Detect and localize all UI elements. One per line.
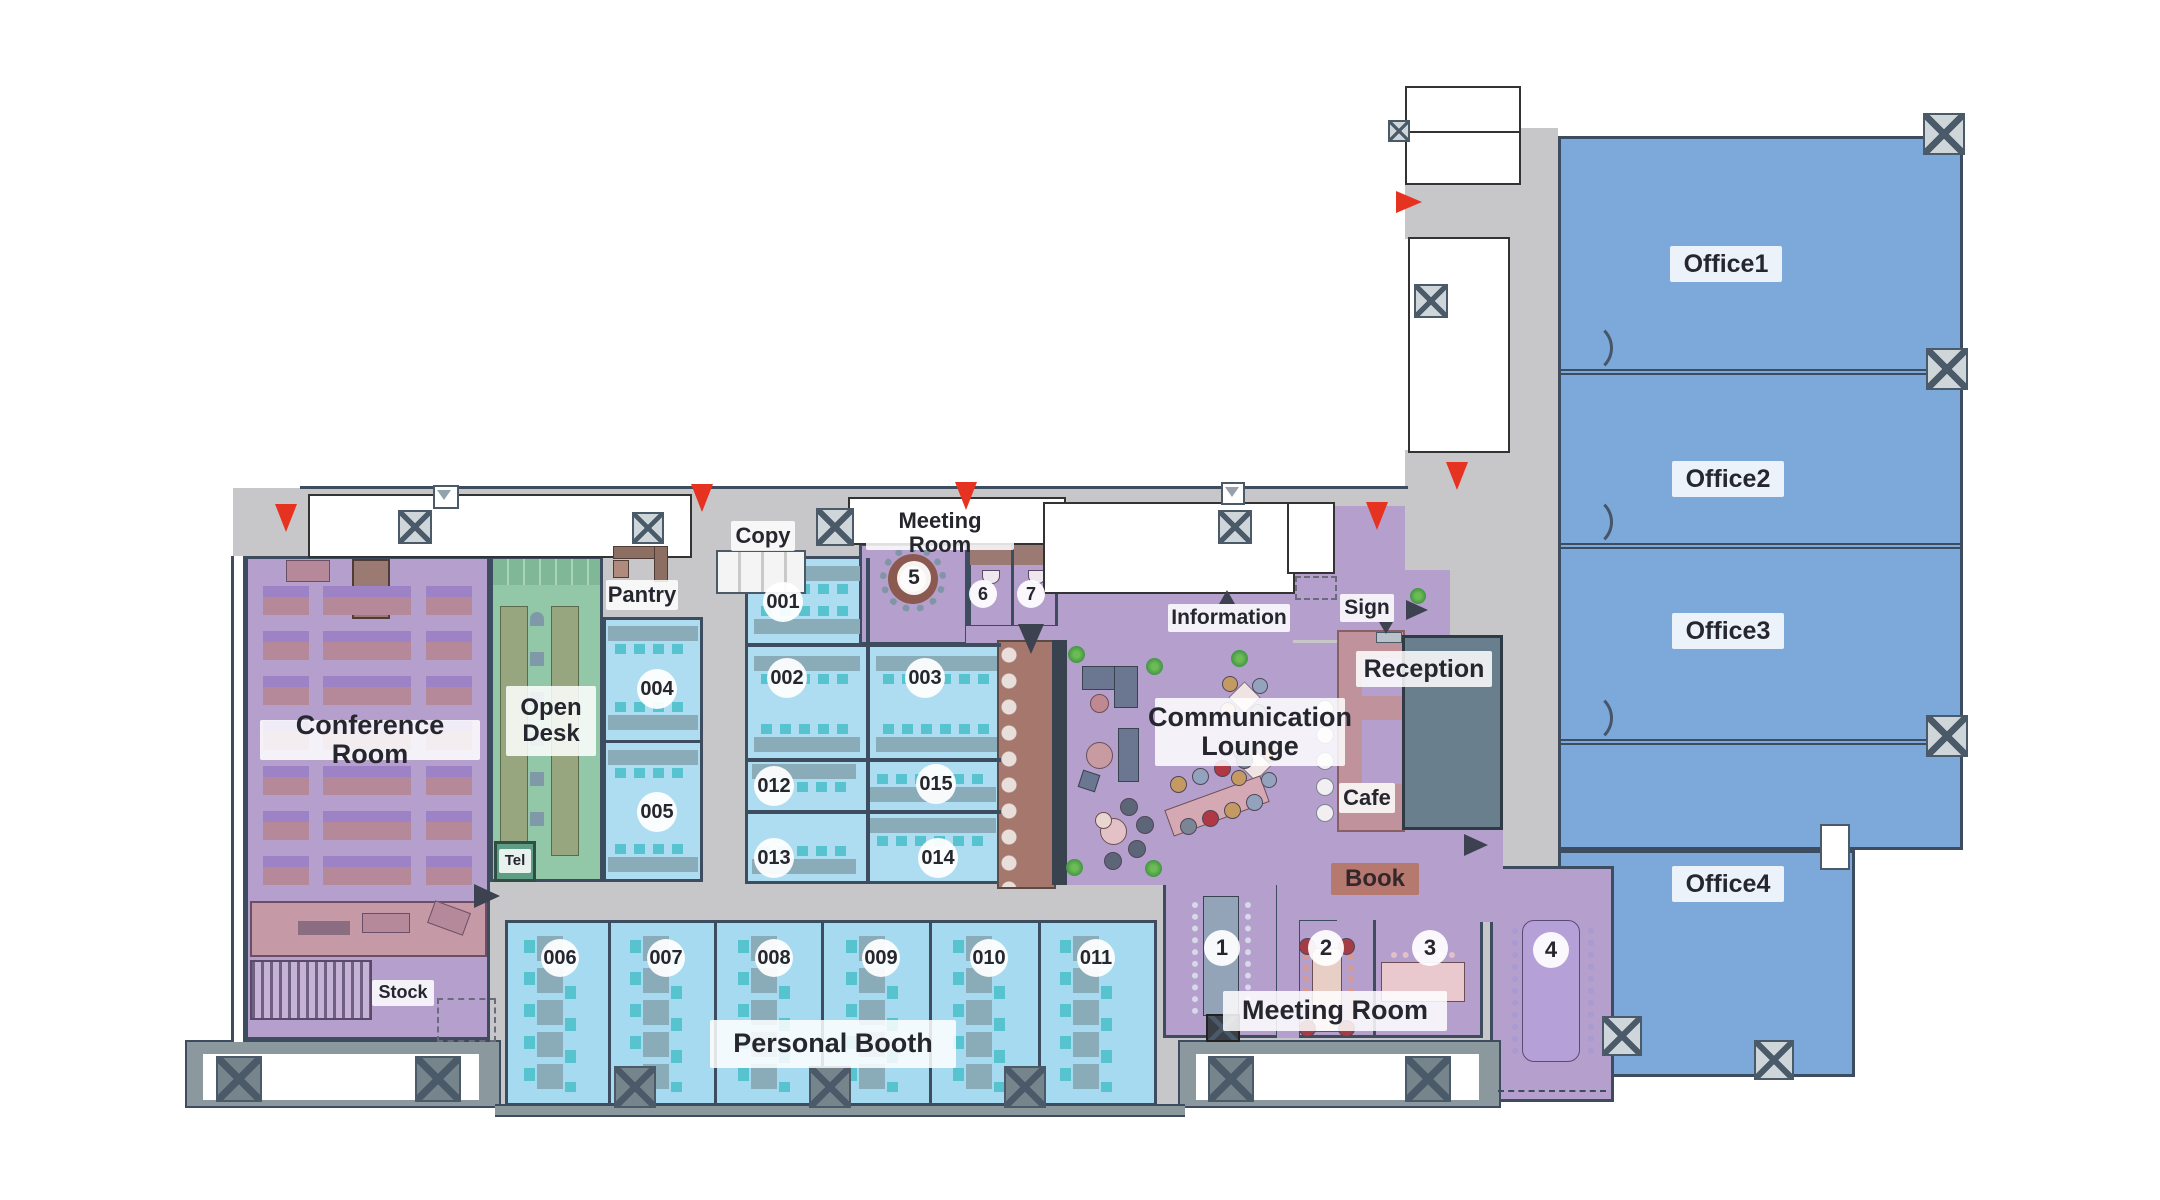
locker-icon bbox=[614, 1066, 656, 1108]
route-arrow-icon bbox=[1406, 600, 1428, 620]
lounge-chair bbox=[1261, 772, 1277, 788]
lounge-chair bbox=[1104, 852, 1122, 870]
cafe-seat bbox=[1316, 778, 1334, 796]
reception-label: Reception bbox=[1356, 651, 1492, 687]
room-number: 004 bbox=[637, 669, 677, 709]
route-arrow-icon bbox=[1379, 622, 1393, 634]
entrance-arrow-icon bbox=[955, 482, 977, 510]
room-number: 2 bbox=[1308, 930, 1344, 966]
lounge-chair bbox=[1246, 794, 1263, 811]
office1-label: Office1 bbox=[1670, 246, 1782, 282]
plant-icon bbox=[1066, 859, 1083, 876]
lounge-chair bbox=[1120, 798, 1138, 816]
lounge-chair bbox=[1252, 678, 1268, 694]
entrance-arrow-icon bbox=[691, 484, 713, 512]
lounge-chair bbox=[1202, 810, 1219, 827]
office1-office2-wall bbox=[1561, 369, 1960, 375]
office1-door-arc bbox=[1561, 322, 1613, 374]
entrance-arrow-icon bbox=[1446, 462, 1468, 490]
cafe-seat bbox=[1316, 804, 1334, 822]
room-number: 002 bbox=[767, 658, 807, 698]
lounge-chair bbox=[1222, 676, 1238, 692]
communication-lounge-label: Communication Lounge bbox=[1155, 698, 1345, 766]
stock-label: Stock bbox=[372, 980, 434, 1006]
room-number: 013 bbox=[754, 838, 794, 878]
office2-office3-wall bbox=[1561, 543, 1960, 549]
book-shelf-wall bbox=[997, 640, 1056, 889]
office3-door-arc bbox=[1561, 692, 1613, 744]
floor-plan: Office1 Office2 Office3 Office4 Pantry C… bbox=[0, 0, 2160, 1200]
window-band bbox=[231, 556, 245, 1042]
booth-wall bbox=[714, 922, 717, 1104]
book-wall-dark-band bbox=[1052, 640, 1067, 885]
lounge-chair bbox=[1170, 776, 1187, 793]
desk-bench bbox=[754, 722, 860, 752]
room-number: 001 bbox=[763, 582, 803, 622]
wall-cell-h2 bbox=[747, 758, 1001, 762]
tel-label: Tel bbox=[499, 849, 531, 873]
route-arrow-icon bbox=[1018, 624, 1044, 654]
desk-bench bbox=[608, 750, 698, 780]
counter-cutout bbox=[1362, 720, 1405, 784]
x-box-icon bbox=[1754, 1040, 1794, 1080]
room-number: 5 bbox=[897, 561, 931, 595]
room-number: 006 bbox=[541, 939, 579, 977]
stock-shelves bbox=[250, 960, 372, 1020]
room-number: 3 bbox=[1412, 930, 1448, 966]
x-box-icon bbox=[398, 510, 432, 544]
lounge-chair bbox=[1231, 770, 1247, 786]
room-number: 015 bbox=[916, 764, 956, 804]
x-box-icon bbox=[1926, 348, 1968, 390]
locker-icon bbox=[809, 1066, 851, 1108]
room-number: 009 bbox=[862, 939, 900, 977]
room-number: 010 bbox=[970, 939, 1008, 977]
sofa bbox=[1114, 666, 1138, 708]
stair-core-room bbox=[1405, 86, 1521, 185]
column-icon bbox=[1405, 1056, 1451, 1102]
information-label: Information bbox=[1168, 604, 1290, 632]
meeting4-chairs bbox=[1512, 928, 1518, 1054]
cafe-label: Cafe bbox=[1339, 783, 1395, 813]
room-number: 007 bbox=[647, 939, 685, 977]
sofa bbox=[1118, 728, 1139, 782]
room-number: 005 bbox=[637, 792, 677, 832]
shaft-triangle-icon bbox=[1221, 482, 1245, 505]
lectern-table bbox=[298, 921, 350, 935]
pantry-counter bbox=[654, 546, 668, 582]
plant-icon bbox=[1146, 658, 1163, 675]
plant-icon bbox=[1145, 860, 1162, 877]
office2-label: Office2 bbox=[1672, 461, 1784, 497]
round-table bbox=[1095, 812, 1112, 829]
booth-wall bbox=[929, 922, 932, 1104]
meeting-room-top-label: Meeting Room bbox=[866, 516, 1014, 550]
elevator-core-room bbox=[1408, 237, 1510, 453]
open-desk-label: Open Desk bbox=[506, 686, 596, 756]
entrance-arrow-icon bbox=[1396, 191, 1422, 213]
lectern-table bbox=[362, 913, 410, 933]
dashed-storage-box bbox=[1295, 576, 1337, 600]
x-box-icon bbox=[632, 512, 664, 544]
wall-cell-h3 bbox=[747, 810, 1001, 814]
room-number: 014 bbox=[918, 838, 958, 878]
x-box-icon bbox=[1602, 1016, 1642, 1056]
x-box-icon bbox=[816, 508, 854, 546]
room-number: 011 bbox=[1077, 939, 1115, 977]
route-arrow-icon bbox=[1464, 834, 1488, 856]
room-number: 012 bbox=[754, 766, 794, 806]
room-number: 008 bbox=[755, 939, 793, 977]
lounge-chair bbox=[1192, 768, 1209, 785]
room-number: 003 bbox=[905, 658, 945, 698]
meeting-room-bottom-label: Meeting Room bbox=[1223, 991, 1447, 1031]
entrance-arrow-icon bbox=[1366, 502, 1388, 530]
desk-bench bbox=[876, 722, 998, 752]
lounge-chair bbox=[1136, 816, 1154, 834]
wall-004-005 bbox=[605, 740, 701, 743]
dashed-partition bbox=[1498, 1090, 1606, 1092]
route-arrow-icon bbox=[1219, 590, 1235, 604]
column-icon bbox=[216, 1056, 262, 1102]
sign-label: Sign bbox=[1340, 594, 1394, 622]
conference-room-label: Conference Room bbox=[260, 720, 480, 760]
ottoman bbox=[1090, 694, 1109, 713]
entrance-arrow-icon bbox=[275, 504, 297, 532]
booth-wall bbox=[608, 922, 611, 1104]
dashed-storage-box bbox=[437, 998, 496, 1042]
lounge-chair bbox=[1224, 802, 1241, 819]
lounge-chair bbox=[1128, 840, 1146, 858]
room-number: 7 bbox=[1017, 580, 1045, 608]
x-box-icon bbox=[1414, 284, 1448, 318]
room-number: 6 bbox=[969, 580, 997, 608]
room-number: 1 bbox=[1204, 930, 1240, 966]
locker-band bbox=[493, 559, 600, 585]
x-box-icon bbox=[1218, 510, 1252, 544]
x-box-icon bbox=[1923, 113, 1965, 155]
shaft-triangle-icon bbox=[433, 485, 459, 509]
plant-icon bbox=[1231, 650, 1248, 667]
column-icon bbox=[1208, 1056, 1254, 1102]
personal-booth-label: Personal Booth bbox=[710, 1020, 956, 1068]
office4-label: Office4 bbox=[1672, 866, 1784, 902]
x-box-icon bbox=[1388, 120, 1410, 142]
service-core-room bbox=[1043, 502, 1295, 594]
service-core-room bbox=[1287, 502, 1335, 574]
round-table bbox=[1086, 742, 1113, 769]
wall-cell-h1 bbox=[747, 643, 1001, 647]
x-box-icon bbox=[1926, 715, 1968, 757]
pantry-counter bbox=[613, 560, 629, 578]
pantry-label: Pantry bbox=[606, 580, 678, 610]
side-desk bbox=[286, 560, 330, 582]
column-icon bbox=[415, 1056, 461, 1102]
desk-bench bbox=[608, 842, 698, 872]
desk-bench bbox=[608, 626, 698, 656]
lounge-chair bbox=[1180, 818, 1197, 835]
room-number: 4 bbox=[1533, 932, 1569, 968]
wall-6-7 bbox=[1011, 545, 1014, 626]
copy-label: Copy bbox=[731, 521, 795, 551]
route-arrow-icon bbox=[474, 884, 500, 908]
facade-step-box bbox=[1820, 824, 1850, 870]
office3-label: Office3 bbox=[1672, 613, 1784, 649]
meeting4-chairs bbox=[1588, 928, 1594, 1054]
book-label: Book bbox=[1331, 863, 1419, 895]
office3-office4-wall bbox=[1561, 739, 1960, 745]
wing-corridor bbox=[1505, 128, 1558, 868]
office2-door-arc bbox=[1561, 496, 1613, 548]
stair-core-divider bbox=[1405, 131, 1521, 133]
plant-icon bbox=[1068, 646, 1085, 663]
locker-icon bbox=[1004, 1066, 1046, 1108]
meeting1-chairs bbox=[1192, 902, 1198, 1014]
wall-cell-vertical bbox=[866, 558, 870, 882]
